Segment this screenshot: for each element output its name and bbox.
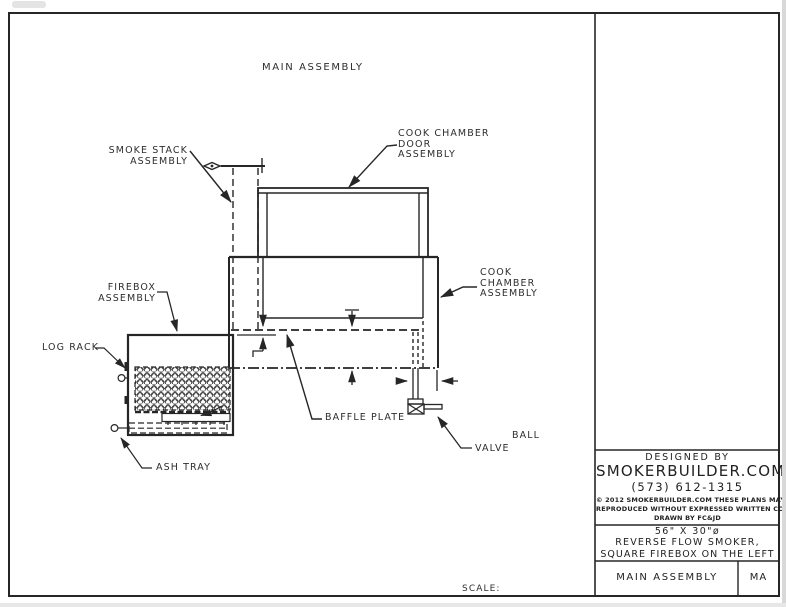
ball-valve-label-line2: VALVE <box>475 444 510 455</box>
smoke-stack-label: SMOKE STACK ASSEMBLY <box>60 146 188 167</box>
log-rack-label: LOG RACK <box>42 343 99 354</box>
door-label-line3: ASSEMBLY <box>398 150 490 161</box>
firebox-label-line1: FIREBOX <box>60 283 156 294</box>
ash-tray-handle <box>111 425 118 432</box>
valve-handle <box>424 405 442 410</box>
log-rack <box>95 348 230 412</box>
door-leader <box>349 145 397 187</box>
ball-valve-label-line1: BALL <box>512 431 540 442</box>
ball-valve <box>398 368 472 448</box>
firebox-label-line2: ASSEMBLY <box>60 294 156 305</box>
baffle-leader <box>287 335 322 419</box>
paper-edge-bottom <box>0 603 786 607</box>
smoke-stack-label-line2: ASSEMBLY <box>60 157 188 168</box>
scan-smudge <box>12 1 46 8</box>
chamber-label-line3: ASSEMBLY <box>480 289 538 300</box>
cook-chamber-label: COOK CHAMBER ASSEMBLY <box>480 268 538 300</box>
copyright-line3: DRAWN BY FC&JD <box>596 514 779 522</box>
log-rack-leader <box>95 348 125 368</box>
copyright-line2: REPRODUCED WITHOUT EXPRESSED WRITTEN CON… <box>596 505 779 513</box>
firebox-label: FIREBOX ASSEMBLY <box>60 283 156 304</box>
smoke-stack-leader <box>190 151 231 202</box>
cook-chamber <box>229 257 477 419</box>
paper-edge-right <box>782 0 786 607</box>
ash-tray-label: ASH TRAY <box>156 463 211 474</box>
sheet-code: MA <box>738 572 779 583</box>
cook-chamber-door-label: COOK CHAMBER DOOR ASSEMBLY <box>398 129 490 161</box>
chamber-leader <box>441 287 477 297</box>
stack-damper-handle <box>204 163 229 170</box>
cook-chamber-door <box>258 145 428 257</box>
ash-tray-leader <box>121 438 152 468</box>
door-label-line1: COOK CHAMBER <box>398 129 490 140</box>
chamber-label-line1: COOK <box>480 268 538 279</box>
blueprint-page: { "drawing": { "title": "MAIN ASSEMBLY",… <box>0 0 786 607</box>
description-line2: SQUARE FIREBOX ON THE LEFT <box>596 549 779 560</box>
description-line1: REVERSE FLOW SMOKER, <box>596 537 779 548</box>
valve-leader <box>438 417 472 448</box>
log-rack-handle <box>118 375 125 382</box>
drawing-title: MAIN ASSEMBLY <box>262 63 364 74</box>
phone-number: (573) 612-1315 <box>596 480 779 494</box>
firebox-leader <box>157 292 177 331</box>
baffle-plate-label: BAFFLE PLATE <box>325 413 405 424</box>
smoke-stack <box>190 151 265 330</box>
size-spec: 56" X 30"ø <box>596 526 779 537</box>
copyright-line1: © 2012 SMOKERBUILDER.COM THESE PLANS MAY… <box>596 496 779 504</box>
scale-label: SCALE: <box>462 584 501 595</box>
smoke-stack-label-line1: SMOKE STACK <box>60 146 188 157</box>
sheet-name: MAIN ASSEMBLY <box>596 572 738 583</box>
company-name: SMOKERBUILDER.COM <box>596 462 779 480</box>
